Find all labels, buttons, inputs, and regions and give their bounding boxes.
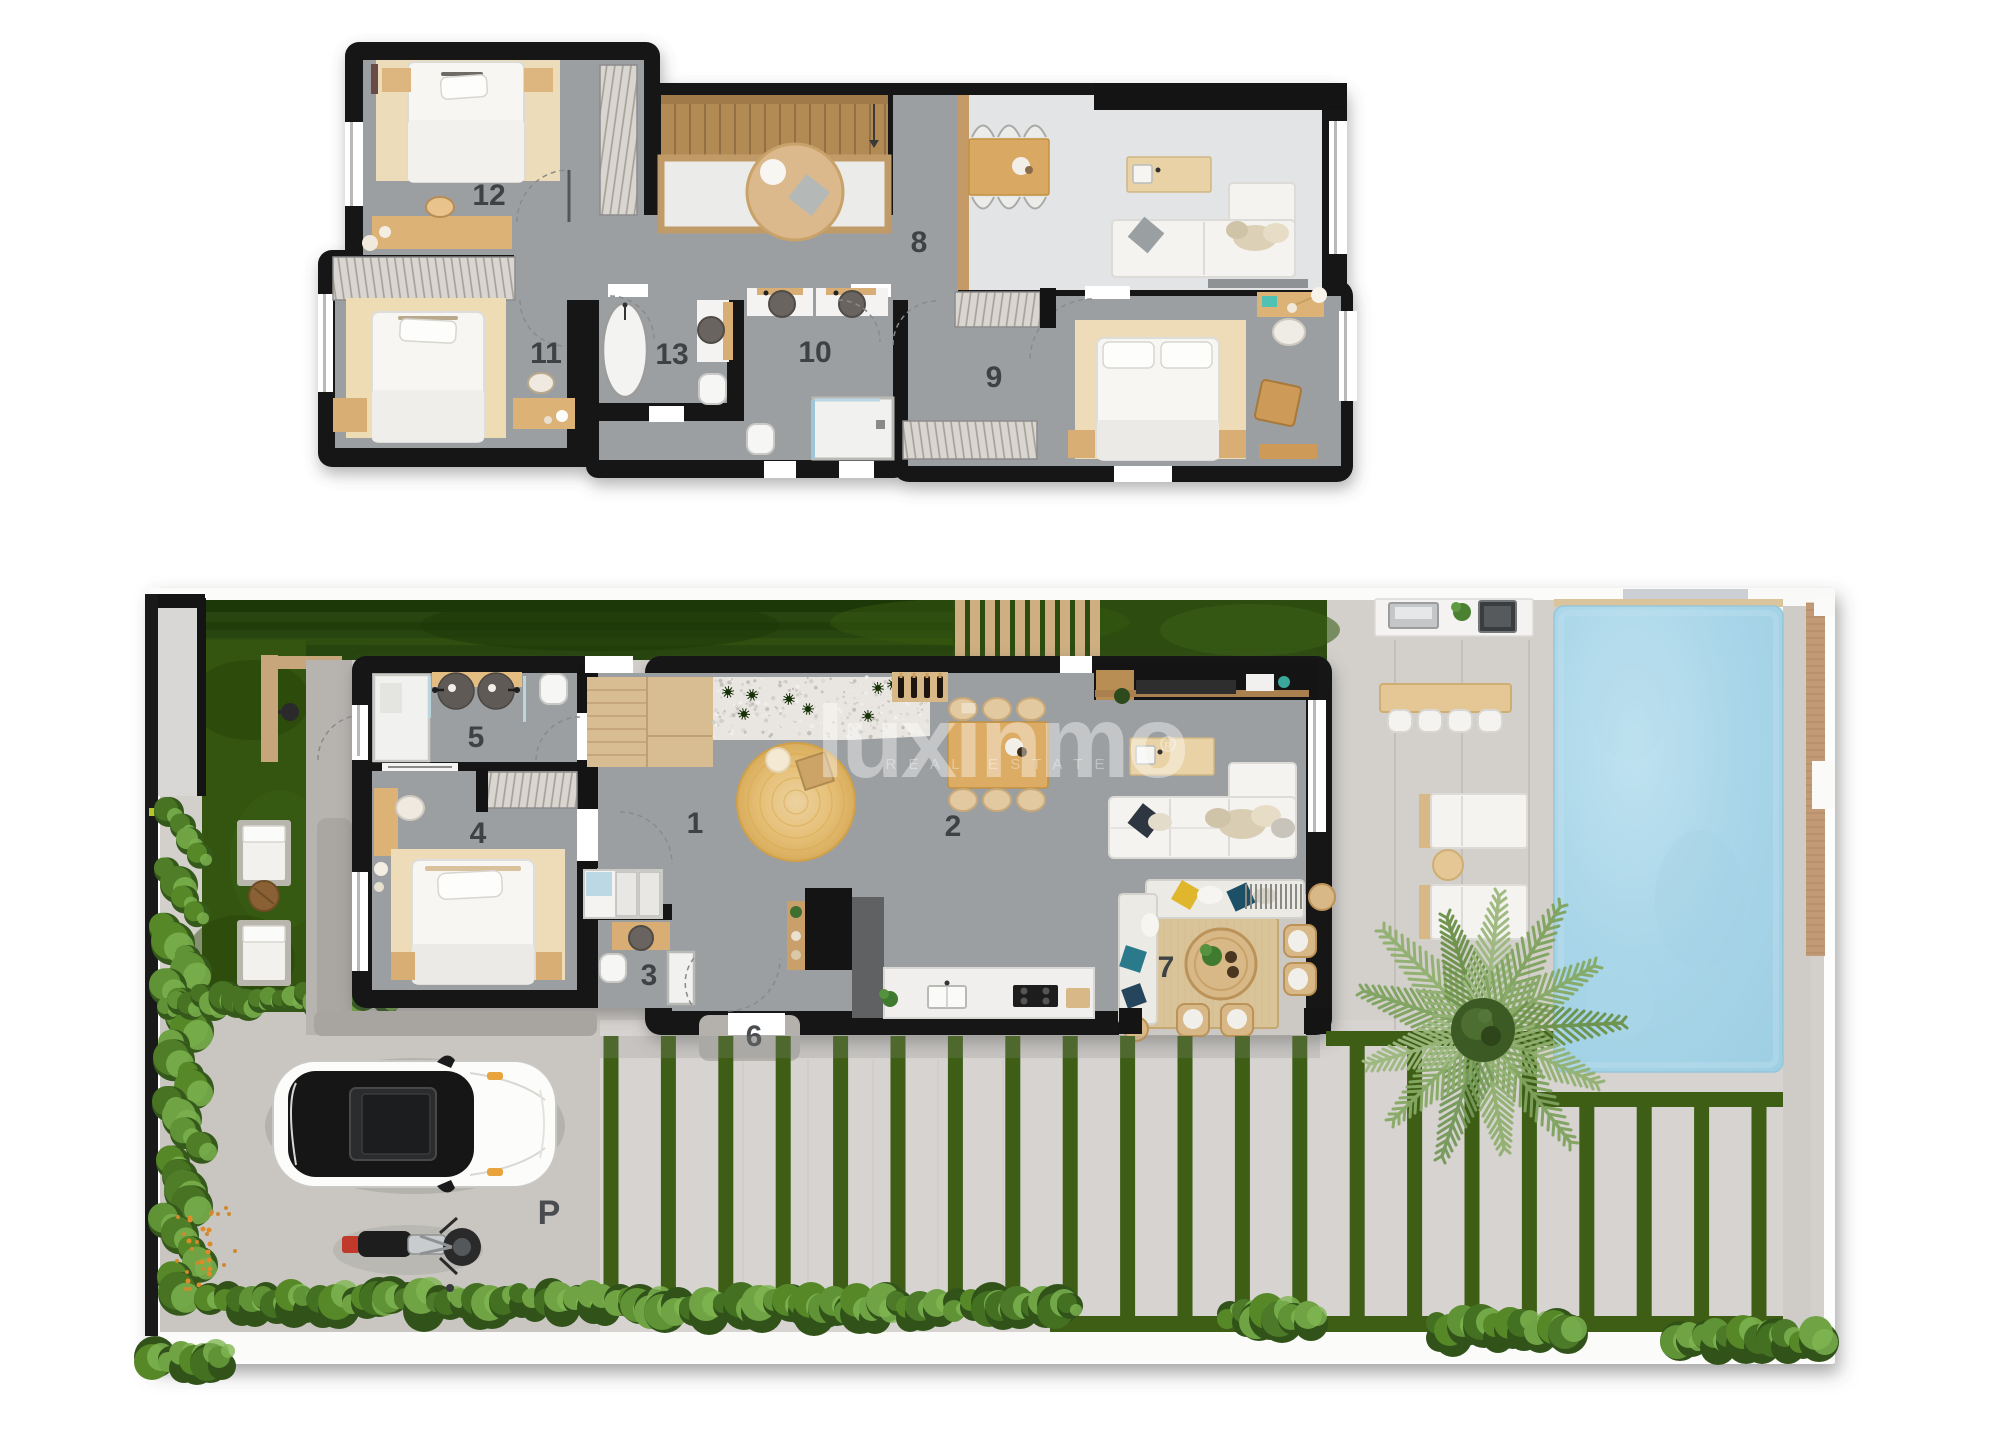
svg-text:3: 3 xyxy=(641,959,658,992)
svg-text:9: 9 xyxy=(986,361,1003,394)
svg-text:luxinmo: luxinmo xyxy=(816,685,1186,799)
svg-text:11: 11 xyxy=(530,337,562,370)
svg-text:13: 13 xyxy=(655,338,688,371)
svg-text:R: R xyxy=(1164,741,1172,752)
svg-text:R E A L E S T A T E: R E A L E S T A T E xyxy=(886,756,1109,773)
svg-text:10: 10 xyxy=(798,336,831,369)
svg-text:5: 5 xyxy=(468,721,485,754)
svg-text:4: 4 xyxy=(470,817,487,850)
svg-text:P: P xyxy=(538,1194,561,1232)
svg-text:1: 1 xyxy=(687,807,704,840)
svg-text:7: 7 xyxy=(1158,951,1175,984)
svg-text:12: 12 xyxy=(472,179,505,212)
svg-text:8: 8 xyxy=(911,226,928,259)
svg-text:2: 2 xyxy=(945,810,962,843)
